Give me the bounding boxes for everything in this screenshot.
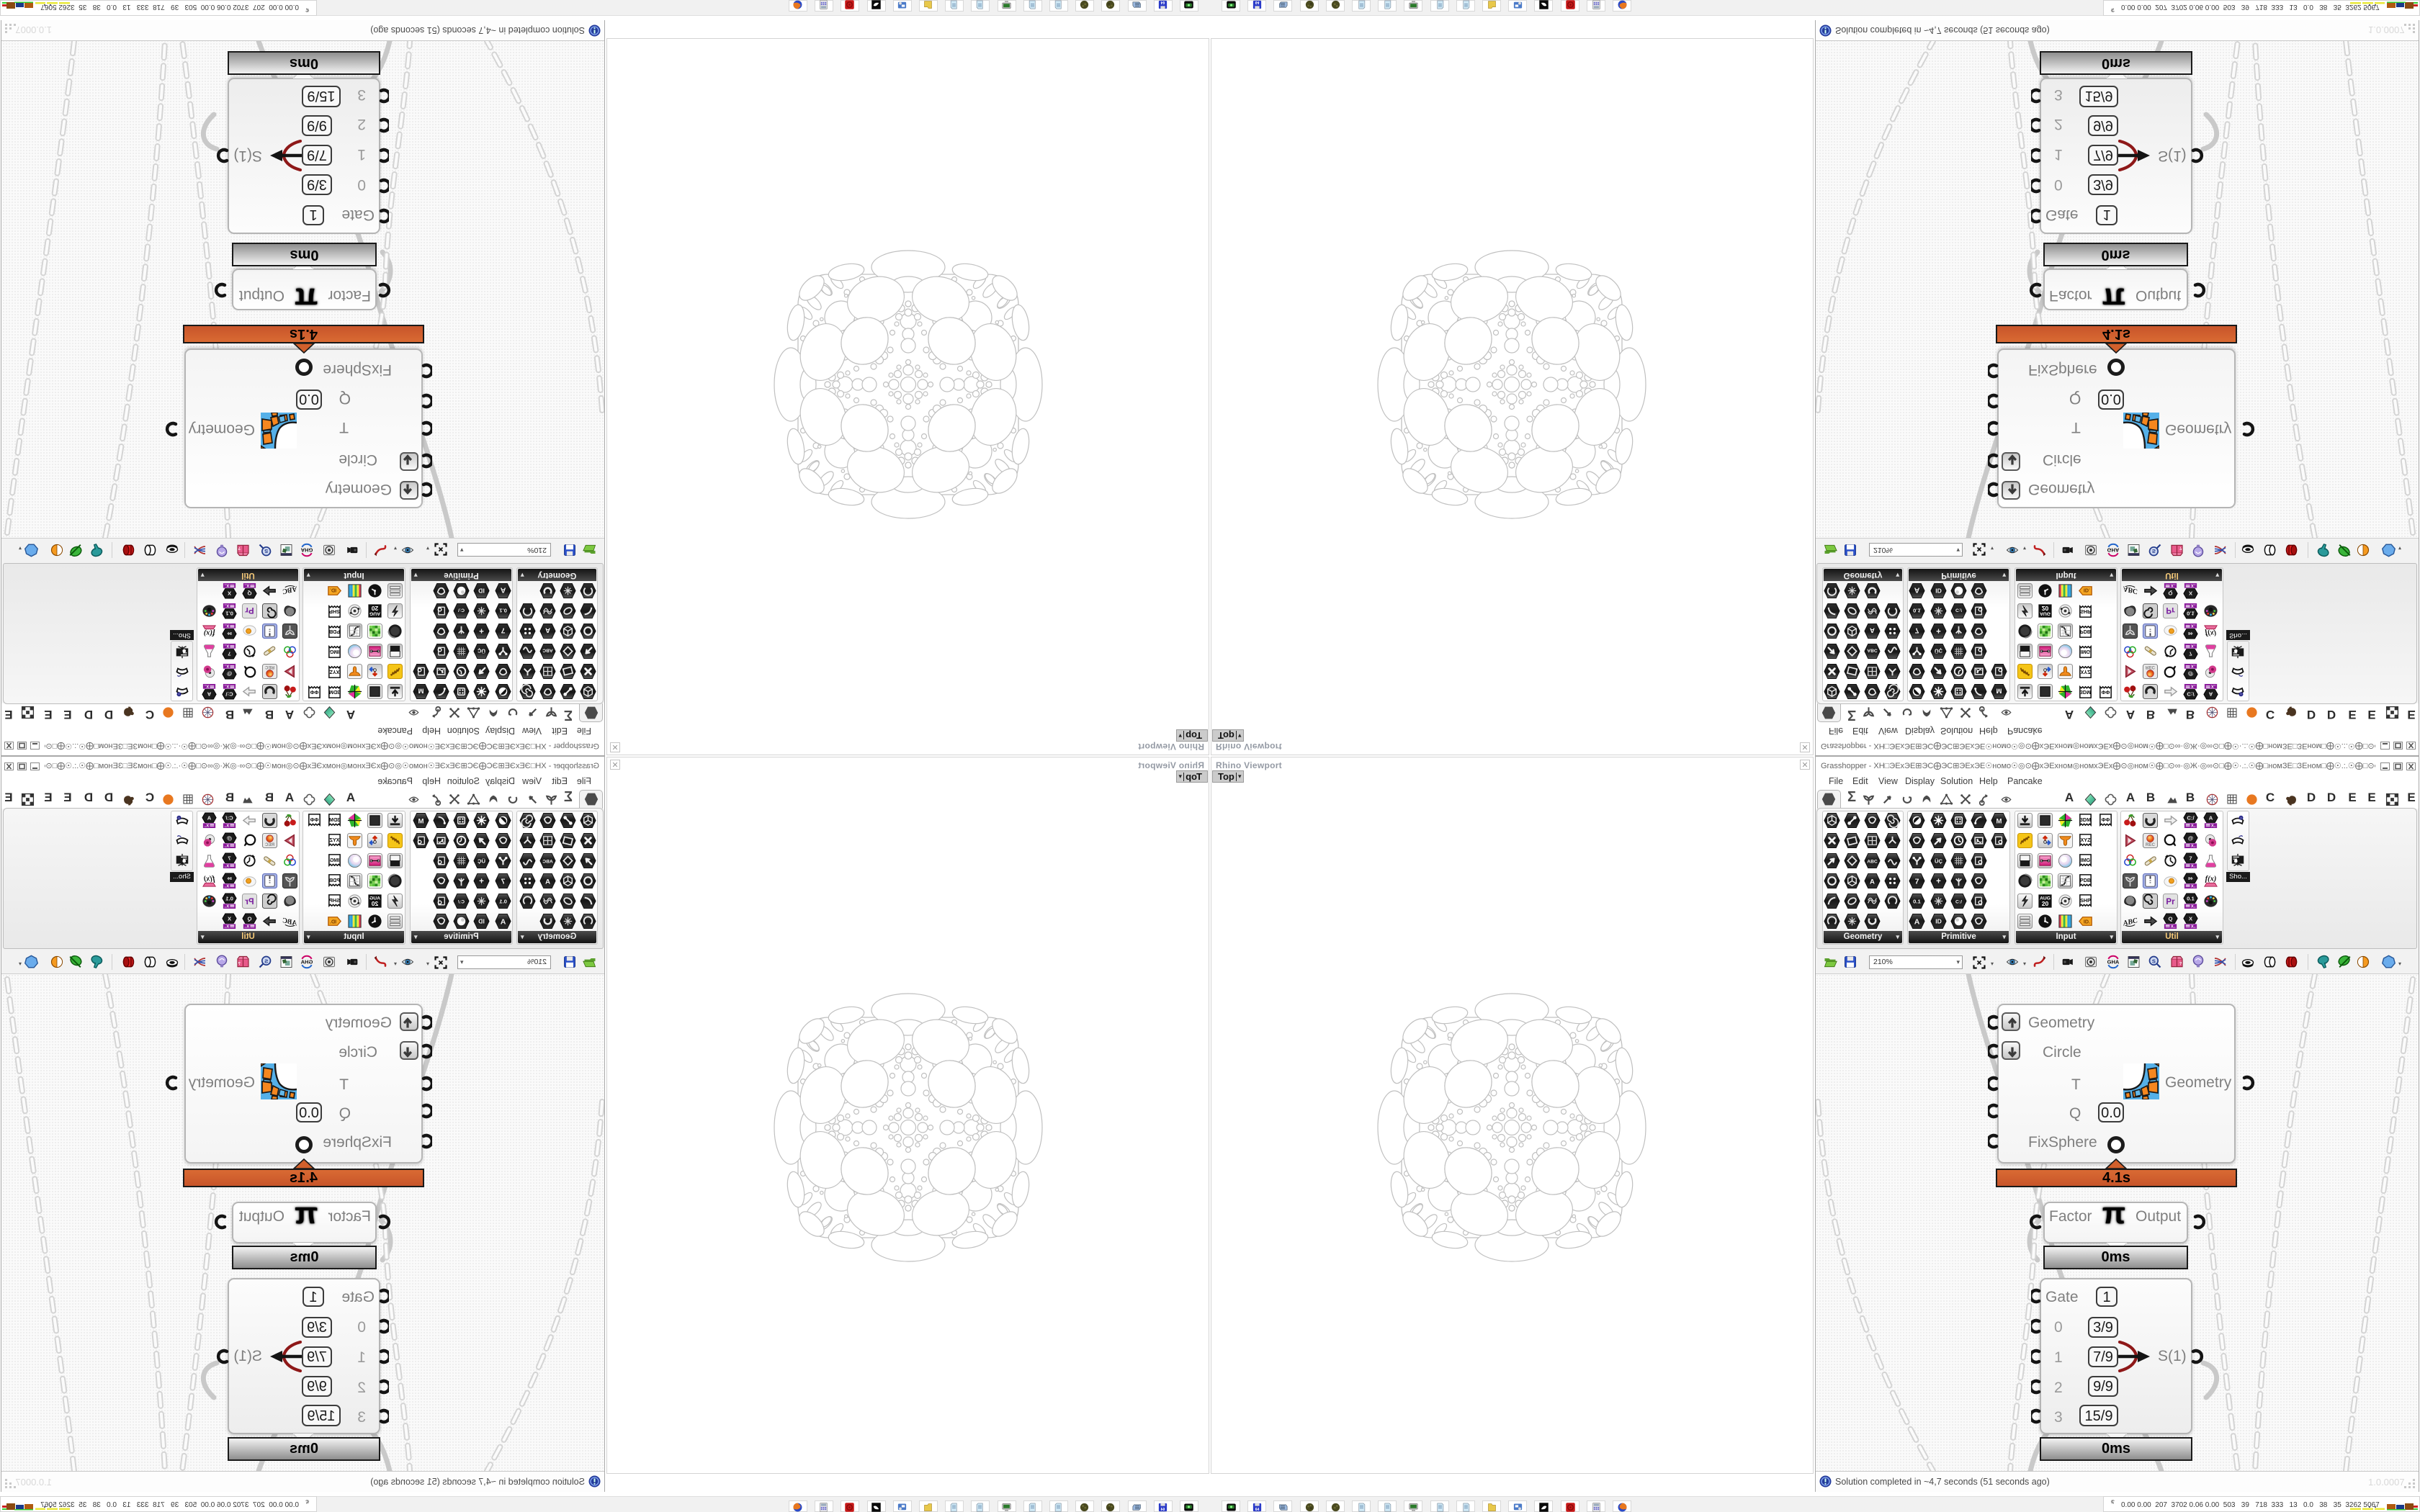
- svg-text:S: S: [2152, 958, 2156, 964]
- svg-text:C:/: C:/: [1955, 899, 1962, 904]
- svg-text:X..: X..: [224, 845, 229, 849]
- svg-text:A: A: [2209, 815, 2213, 822]
- svg-text:Q: Q: [2169, 916, 2173, 922]
- svg-text:REC: REC: [264, 842, 274, 847]
- svg-text:S: S: [2152, 548, 2156, 554]
- svg-text:ΦΦ: ΦΦ: [310, 689, 319, 695]
- svg-text:X..: X..: [224, 824, 229, 829]
- svg-text:GHA: GHA: [2107, 547, 2120, 554]
- svg-text:0.1: 0.1: [225, 896, 233, 902]
- svg-text:X..: X..: [224, 623, 229, 627]
- svg-text:0.1: 0.1: [2187, 896, 2195, 902]
- svg-text:M: M: [1996, 817, 2002, 825]
- svg-text:ÜÇ: ÜÇ: [1935, 648, 1943, 654]
- svg-text:?: ?: [2179, 546, 2182, 550]
- svg-text:i: i: [179, 816, 179, 820]
- svg-text:Pr: Pr: [2166, 898, 2175, 906]
- svg-text:20: 20: [2042, 605, 2049, 612]
- svg-text:X..: X..: [2191, 623, 2196, 627]
- svg-text:@: @: [226, 835, 232, 842]
- svg-text:3DM: 3DM: [329, 689, 340, 695]
- svg-text:7: 7: [228, 855, 230, 862]
- svg-text:f(x): f(x): [2205, 629, 2217, 637]
- svg-text:SHP: SHP: [329, 898, 340, 904]
- svg-text:X..: X..: [2171, 582, 2176, 587]
- svg-text:M: M: [418, 687, 423, 695]
- svg-text:ÜÇ: ÜÇ: [1935, 858, 1943, 864]
- svg-text:7: 7: [2189, 650, 2192, 657]
- svg-text:X..: X..: [224, 925, 229, 930]
- svg-text:i: i: [179, 692, 179, 696]
- svg-text:XYZ: XYZ: [2081, 837, 2092, 843]
- svg-text:GHA: GHA: [300, 547, 313, 554]
- svg-text:X..: X..: [224, 905, 229, 909]
- svg-text:Pr: Pr: [2166, 606, 2175, 614]
- svg-text:X..: X..: [2191, 845, 2196, 849]
- svg-text:Q: Q: [247, 916, 251, 922]
- svg-text:3DM: 3DM: [329, 817, 340, 823]
- svg-text:Q: Q: [247, 590, 251, 596]
- svg-text:IMG: IMG: [329, 858, 339, 863]
- svg-text:f(x): f(x): [204, 876, 215, 883]
- svg-text:A: A: [545, 878, 550, 886]
- svg-text:X..: X..: [224, 865, 229, 869]
- svg-text:X..: X..: [224, 603, 229, 607]
- svg-text:PDB: PDB: [2080, 878, 2091, 883]
- svg-text:ID: ID: [1935, 917, 1942, 924]
- svg-text:A: A: [1870, 626, 1875, 634]
- svg-text:X..: X..: [224, 885, 229, 889]
- svg-text:ID.: ID.: [330, 588, 336, 593]
- svg-text:C:/: C:/: [225, 690, 233, 697]
- svg-text:X: X: [2189, 916, 2193, 922]
- svg-text:0.1: 0.1: [1913, 898, 1921, 904]
- svg-text:0.1: 0.1: [225, 610, 233, 616]
- svg-text:ABC: ABC: [1867, 648, 1878, 653]
- svg-text:SHP: SHP: [2080, 898, 2091, 904]
- svg-text:Q: Q: [2169, 590, 2173, 596]
- svg-text:X: X: [2189, 590, 2193, 596]
- svg-text:A: A: [1914, 586, 1920, 595]
- svg-text:X..: X..: [2191, 683, 2196, 688]
- svg-text:ÜÇ: ÜÇ: [478, 858, 486, 864]
- svg-text:XYZ: XYZ: [2081, 669, 2092, 675]
- svg-text:64: 64: [1161, 1507, 1165, 1511]
- svg-text:ID: ID: [478, 588, 485, 595]
- svg-text:0.1: 0.1: [498, 898, 506, 904]
- svg-text:?: ?: [238, 546, 241, 550]
- svg-text:PDB: PDB: [2080, 629, 2091, 634]
- svg-text:7: 7: [501, 626, 505, 635]
- svg-text:X..: X..: [2191, 824, 2196, 829]
- svg-text:X..: X..: [224, 663, 229, 667]
- svg-text:@: @: [226, 670, 232, 677]
- svg-text:ABC: ABC: [542, 859, 553, 864]
- svg-text:X..: X..: [2191, 663, 2196, 667]
- svg-text:7: 7: [2189, 855, 2192, 862]
- svg-text:XYZ: XYZ: [329, 837, 340, 843]
- svg-text:ÜÇ: ÜÇ: [478, 648, 486, 654]
- svg-text:20: 20: [372, 605, 379, 612]
- svg-text:A: A: [1870, 878, 1875, 886]
- svg-text:64: 64: [1161, 1, 1165, 5]
- svg-text:20: 20: [2042, 900, 2049, 907]
- svg-text:C:/: C:/: [2187, 815, 2195, 822]
- svg-text:PDB: PDB: [329, 629, 340, 634]
- svg-text:X..: X..: [2171, 925, 2176, 930]
- svg-text:X..: X..: [2191, 925, 2196, 930]
- svg-text:X..: X..: [244, 582, 249, 587]
- svg-text:S: S: [264, 958, 268, 964]
- svg-text:+: +: [479, 877, 484, 886]
- svg-text:X..: X..: [2191, 643, 2196, 647]
- svg-text:C:/: C:/: [458, 608, 465, 613]
- svg-text:+: +: [1936, 626, 1941, 635]
- svg-text:64: 64: [1255, 1, 1259, 5]
- svg-text:20: 20: [372, 900, 379, 907]
- svg-text:i: i: [2241, 816, 2241, 820]
- svg-text:7: 7: [1915, 626, 1919, 635]
- svg-text:?: ?: [238, 962, 241, 966]
- svg-text:Pr: Pr: [245, 606, 254, 614]
- svg-text:0.1: 0.1: [498, 608, 506, 614]
- svg-text:0.1: 0.1: [2187, 610, 2195, 616]
- svg-text:X: X: [227, 916, 231, 922]
- svg-text:IMG: IMG: [2081, 649, 2091, 654]
- svg-text:7: 7: [228, 650, 230, 657]
- svg-text:A: A: [2209, 690, 2213, 697]
- svg-text:X..: X..: [2191, 582, 2196, 587]
- svg-text:C:/: C:/: [225, 815, 233, 822]
- svg-text:f(x): f(x): [2205, 876, 2217, 883]
- svg-text:ΦΦ: ΦΦ: [2102, 817, 2110, 823]
- svg-text:PDB: PDB: [329, 878, 340, 883]
- svg-text:ID.: ID.: [2084, 919, 2090, 924]
- svg-text:ΦΦ: ΦΦ: [310, 817, 319, 823]
- svg-text:M: M: [418, 817, 423, 825]
- svg-text:XYZ: XYZ: [329, 669, 340, 675]
- svg-text:REC: REC: [2146, 665, 2156, 670]
- svg-text:C:/: C:/: [2187, 690, 2195, 697]
- svg-text:A: A: [207, 690, 211, 697]
- svg-text:X..: X..: [204, 683, 209, 688]
- svg-text:ID: ID: [478, 917, 485, 924]
- svg-text:7: 7: [1915, 877, 1919, 886]
- svg-text:ΦΦ: ΦΦ: [2102, 689, 2110, 695]
- svg-text:⇰: ⇰: [2188, 876, 2193, 882]
- svg-text:GHA: GHA: [2107, 959, 2120, 966]
- svg-text:REC: REC: [264, 665, 274, 670]
- svg-text:SHP: SHP: [2080, 608, 2091, 614]
- svg-text:ID: ID: [1935, 588, 1942, 595]
- svg-text:X..: X..: [2191, 865, 2196, 869]
- svg-text:X..: X..: [204, 824, 209, 829]
- svg-text:X..: X..: [224, 683, 229, 688]
- svg-text:X..: X..: [224, 643, 229, 647]
- svg-text:X: X: [227, 590, 231, 596]
- svg-text:ABC: ABC: [542, 648, 553, 653]
- svg-text:3DM: 3DM: [2080, 689, 2091, 695]
- svg-text:⇰: ⇰: [227, 630, 232, 636]
- svg-text:X..: X..: [224, 582, 229, 587]
- svg-text:C:/: C:/: [458, 899, 465, 904]
- svg-text:X..: X..: [2191, 603, 2196, 607]
- svg-text:⇰: ⇰: [2188, 630, 2193, 636]
- svg-text:GHA: GHA: [300, 959, 313, 966]
- svg-text:ABC: ABC: [1867, 859, 1878, 864]
- svg-text:A: A: [1914, 917, 1920, 926]
- svg-text:C:/: C:/: [1955, 608, 1962, 613]
- svg-text:ID.: ID.: [330, 919, 336, 924]
- svg-text:@: @: [2188, 670, 2194, 677]
- svg-text:@: @: [2188, 835, 2194, 842]
- svg-text:ID.: ID.: [2084, 588, 2090, 593]
- svg-text:Pr: Pr: [245, 898, 254, 906]
- svg-text:X..: X..: [2211, 683, 2216, 688]
- svg-text:A: A: [500, 917, 506, 926]
- svg-text:64: 64: [1255, 1507, 1259, 1511]
- svg-text:S: S: [264, 548, 268, 554]
- svg-text:REC: REC: [2146, 842, 2156, 847]
- svg-text:f(x): f(x): [204, 629, 215, 637]
- svg-text:A: A: [207, 815, 211, 822]
- svg-text:IMG: IMG: [329, 649, 339, 654]
- svg-text:IMG: IMG: [2081, 858, 2091, 863]
- svg-text:?: ?: [2179, 962, 2182, 966]
- svg-text:A: A: [500, 586, 506, 595]
- svg-text:A: A: [545, 626, 550, 634]
- svg-text:0.1: 0.1: [1913, 608, 1921, 614]
- svg-text:7: 7: [501, 877, 505, 886]
- svg-text:+: +: [1936, 877, 1941, 886]
- svg-text:3DM: 3DM: [2080, 817, 2091, 823]
- svg-text:X..: X..: [2191, 905, 2196, 909]
- svg-text:M: M: [1996, 687, 2002, 695]
- svg-text:X..: X..: [2191, 885, 2196, 889]
- svg-text:X..: X..: [2211, 824, 2216, 829]
- svg-text:X..: X..: [244, 925, 249, 930]
- svg-text:+: +: [479, 626, 484, 635]
- svg-text:SHP: SHP: [329, 608, 340, 614]
- svg-text:i: i: [2241, 692, 2241, 696]
- svg-text:⇰: ⇰: [227, 876, 232, 882]
